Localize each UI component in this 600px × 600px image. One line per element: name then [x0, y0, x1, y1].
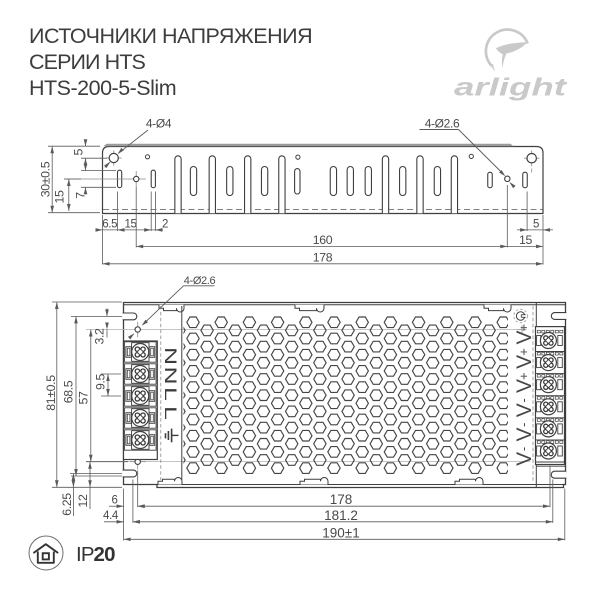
- svg-text:+: +: [516, 324, 531, 331]
- svg-text:4-Ø2.6: 4-Ø2.6: [425, 116, 460, 130]
- svg-text:+: +: [516, 373, 531, 380]
- svg-text:СЕРИИ HTS: СЕРИИ HTS: [29, 50, 146, 74]
- svg-text:-: -: [516, 399, 531, 403]
- svg-text:4-Ø4: 4-Ø4: [146, 117, 172, 131]
- svg-text:68.5: 68.5: [62, 380, 76, 403]
- svg-text:181.2: 181.2: [324, 508, 358, 523]
- svg-text:4.4: 4.4: [103, 510, 119, 522]
- svg-text:V: V: [513, 330, 536, 344]
- svg-text:6.5: 6.5: [102, 218, 117, 230]
- svg-text:ИСТОЧНИКИ НАПРЯЖЕНИЯ: ИСТОЧНИКИ НАПРЯЖЕНИЯ: [29, 24, 312, 48]
- svg-text:N: N: [161, 347, 179, 365]
- svg-text:5: 5: [533, 218, 539, 230]
- svg-text:160: 160: [313, 233, 333, 247]
- svg-text:5: 5: [72, 148, 86, 155]
- svg-text:-: -: [516, 423, 531, 427]
- svg-text:V: V: [513, 379, 536, 393]
- svg-text:12: 12: [76, 494, 90, 507]
- svg-text:+: +: [516, 348, 531, 355]
- svg-text:15: 15: [53, 190, 67, 203]
- svg-text:4-Ø2.6: 4-Ø2.6: [184, 275, 216, 287]
- svg-text:N: N: [161, 367, 179, 385]
- svg-text:57: 57: [77, 391, 91, 404]
- svg-text:9.5: 9.5: [94, 373, 108, 390]
- svg-text:20: 20: [94, 543, 116, 566]
- svg-text:V: V: [513, 427, 536, 441]
- svg-text:L: L: [161, 387, 179, 401]
- svg-text:6.25: 6.25: [60, 493, 74, 516]
- svg-text:30±0.5: 30±0.5: [39, 161, 53, 197]
- svg-text:190±1: 190±1: [322, 526, 359, 541]
- svg-text:178: 178: [330, 492, 353, 507]
- svg-text:2: 2: [162, 218, 168, 230]
- svg-text:L: L: [161, 406, 179, 420]
- svg-text:-: -: [516, 447, 531, 451]
- svg-text:V: V: [513, 355, 536, 369]
- svg-text:7: 7: [74, 192, 88, 199]
- svg-text:178: 178: [313, 250, 333, 264]
- svg-text:HTS-200-5-Slim: HTS-200-5-Slim: [29, 76, 176, 100]
- svg-text:81±0.5: 81±0.5: [44, 375, 58, 411]
- svg-text:V: V: [513, 452, 536, 466]
- svg-text:15: 15: [519, 233, 532, 247]
- svg-text:6: 6: [111, 495, 117, 507]
- svg-text:15: 15: [124, 218, 136, 230]
- svg-text:3.2: 3.2: [93, 328, 107, 345]
- svg-text:IP: IP: [76, 543, 94, 566]
- svg-text:V: V: [513, 403, 536, 417]
- svg-text:arlight: arlight: [454, 73, 568, 101]
